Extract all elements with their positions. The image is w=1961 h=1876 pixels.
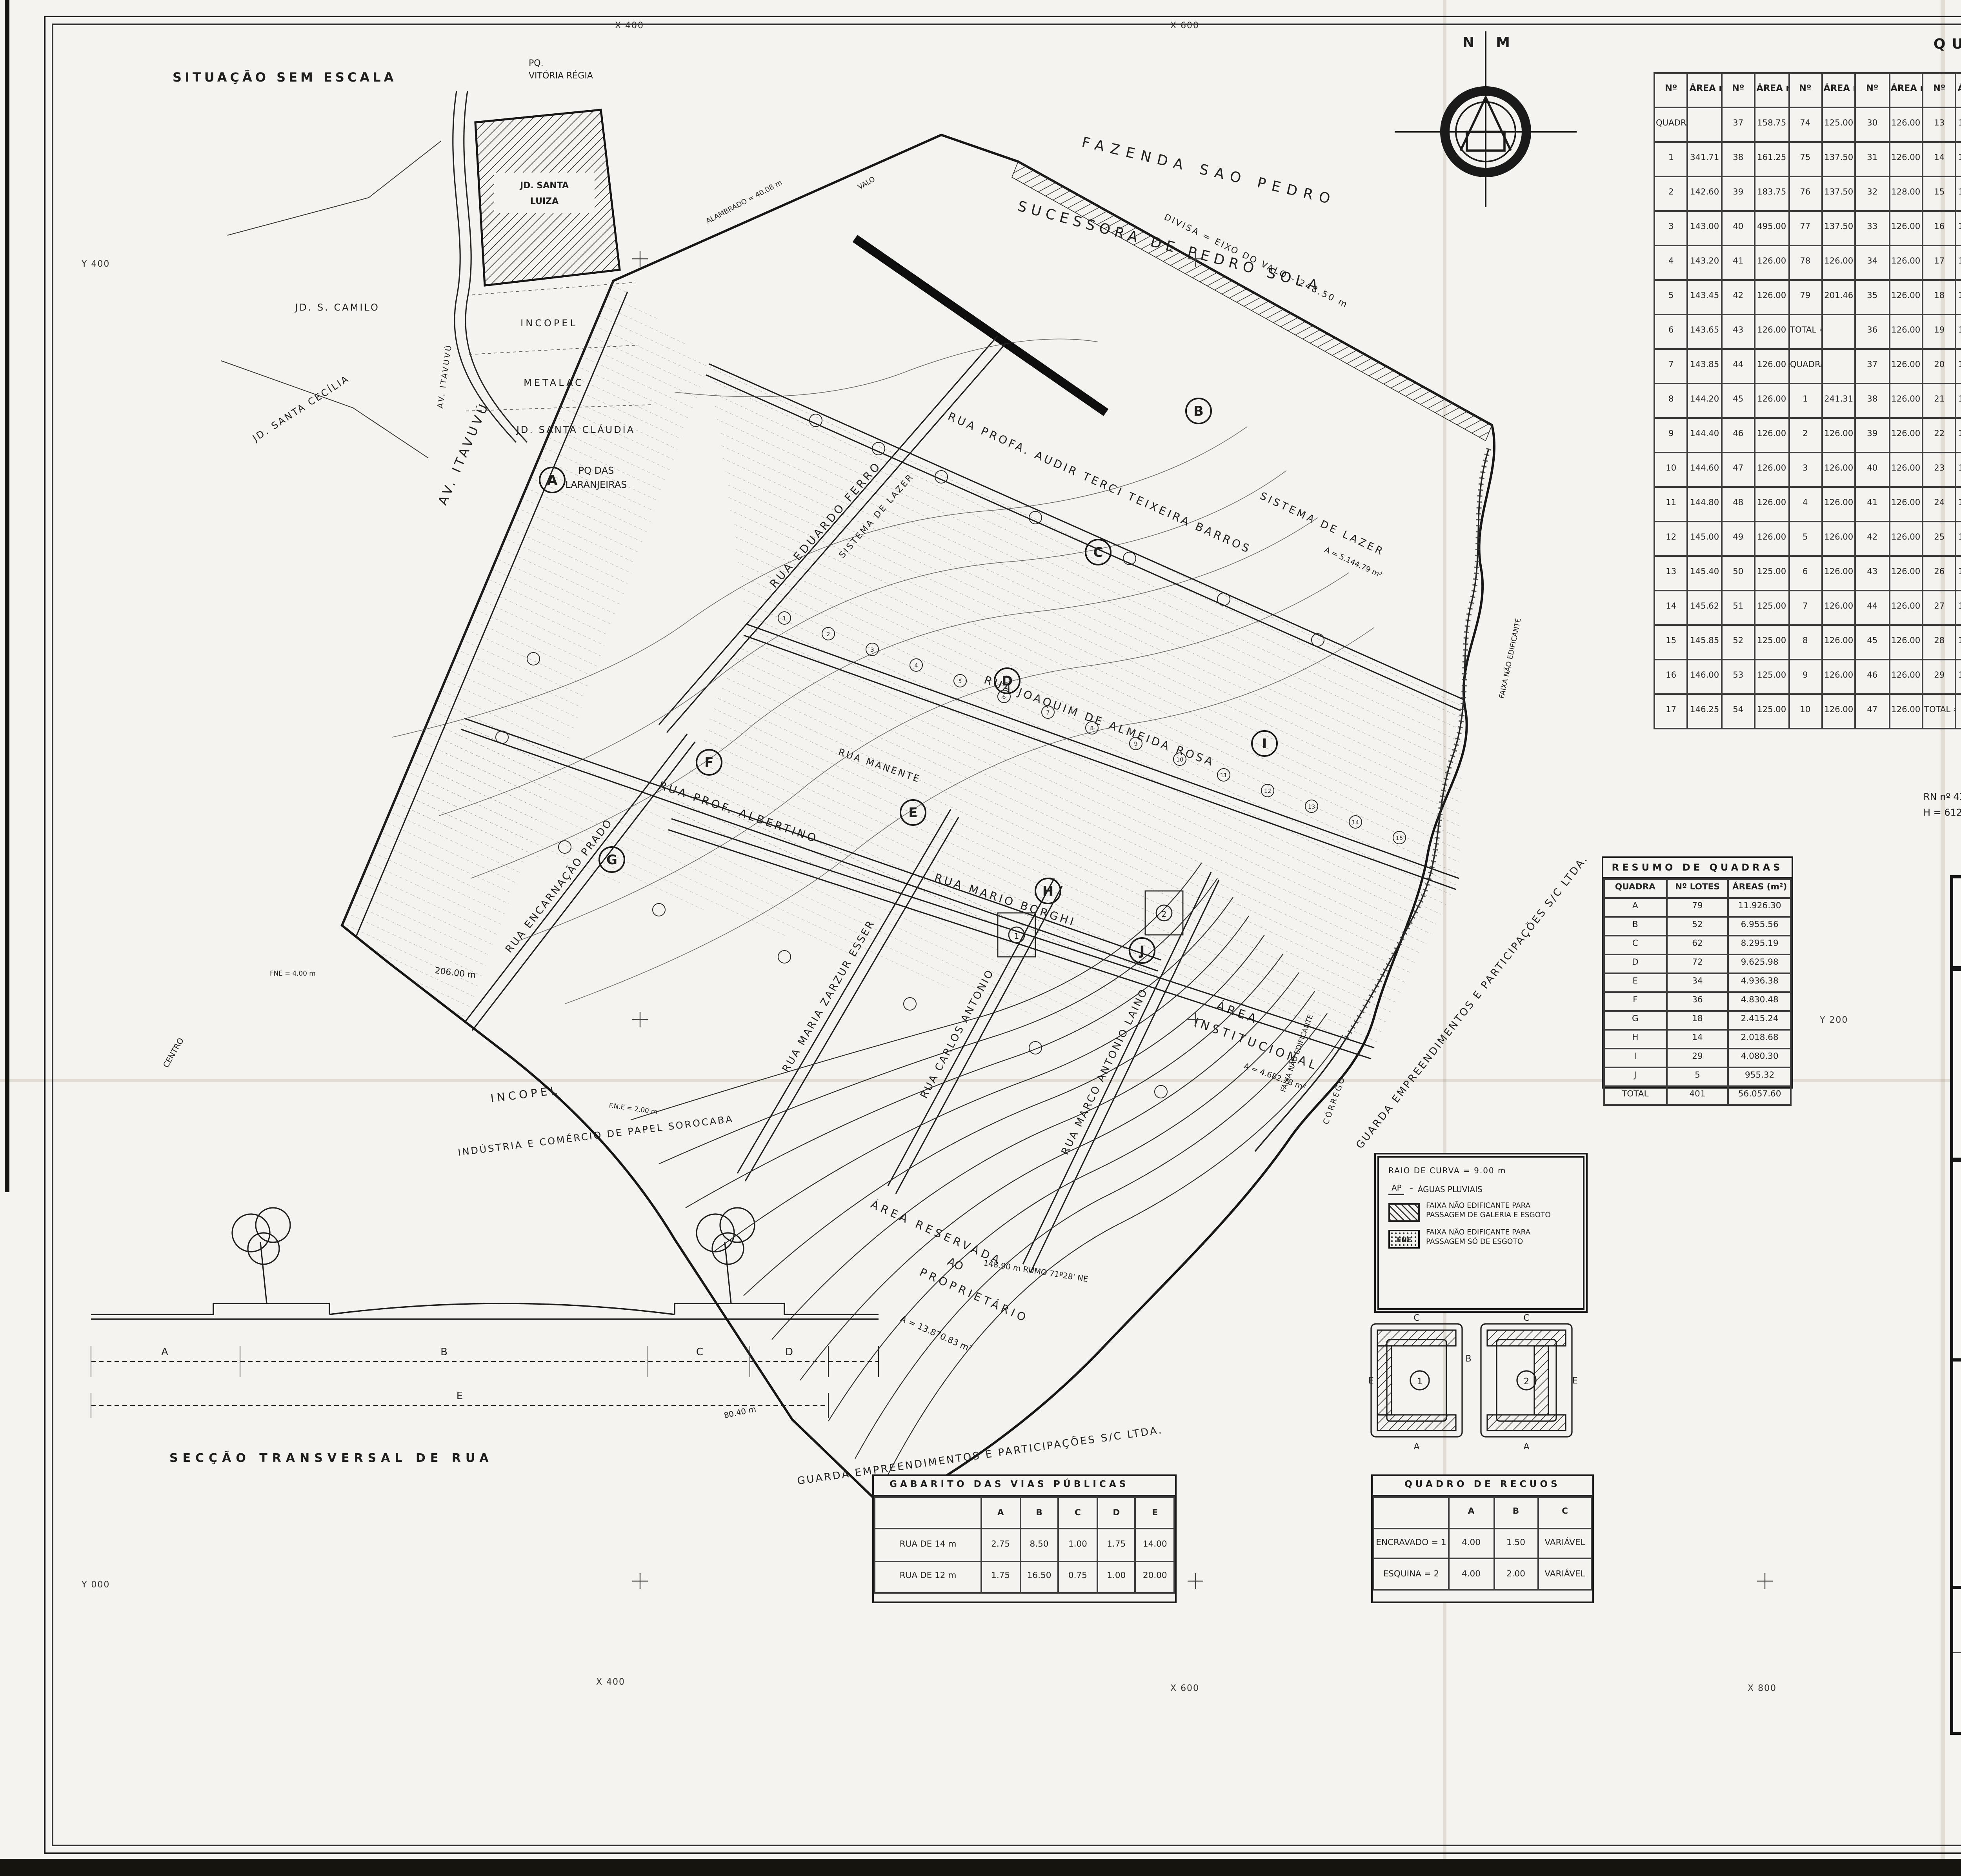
svg-text:13: 13 (1308, 804, 1315, 810)
table-cell: 143.85 (1688, 349, 1722, 384)
table-cell: 24 (1923, 487, 1956, 522)
table-cell: 45 (1855, 625, 1889, 660)
svg-text:FAZENDA SAO PEDRO: FAZENDA SAO PEDRO (1080, 134, 1338, 208)
table-cell: Nº (1855, 73, 1889, 107)
table-cell: 126.00 (1956, 625, 1961, 660)
table-cell: 143.00 (1688, 211, 1722, 245)
table-cell: 126.00 (1956, 660, 1961, 694)
svg-text:3: 3 (870, 647, 874, 653)
table-cell: 126.00 (1889, 142, 1923, 176)
table-cell: Nº (1654, 73, 1688, 107)
table-cell: 125.00 (1755, 660, 1789, 694)
table-cell: 1.00 (1097, 1561, 1135, 1593)
grid-label-x400-bot: X 400 (596, 1678, 625, 1688)
table-cell: 41 (1721, 245, 1755, 280)
table-cell: 6 (1788, 556, 1822, 591)
table-cell: 35 (1855, 280, 1889, 314)
table-cell: 126.00 (1822, 453, 1856, 487)
table-cell: 18 (1923, 280, 1956, 314)
gabarito-title: GABARITO DAS VIAS PÚBLICAS (874, 1476, 1175, 1496)
legend-raio: RAIO DE CURVA = 9.00 m (1388, 1167, 1577, 1176)
table-cell: 25 (1923, 522, 1956, 556)
legend-box: RAIO DE CURVA = 9.00 m AP – ÁGUAS PLUVIA… (1374, 1153, 1588, 1313)
svg-text:1: 1 (782, 616, 786, 622)
svg-text:JD. SANTA: JD. SANTA (519, 181, 569, 191)
svg-text:LUIZA: LUIZA (530, 196, 558, 206)
table-cell: 31 (1855, 142, 1889, 176)
table-cell: 495.00 (1755, 211, 1789, 245)
table-cell: 125.00 (1755, 694, 1789, 729)
table-cell: 42 (1855, 522, 1889, 556)
svg-text:15: 15 (1396, 835, 1403, 842)
legend-fne2-swatch: FNE (1388, 1230, 1420, 1249)
table-cell: A (981, 1497, 1020, 1529)
svg-text:C: C (1413, 1313, 1419, 1323)
svg-text:G: G (606, 852, 617, 868)
table-cell: 126.00 (1755, 280, 1789, 314)
svg-text:VALO: VALO (857, 175, 877, 191)
table-cell: 144.80 (1688, 487, 1722, 522)
legend-fne2-text: FAIXA NÃO EDIFICANTE PARA PASSAGEM SÓ DE… (1426, 1230, 1570, 1249)
table-cell: E (1604, 973, 1666, 992)
table-cell: VARIÁVEL (1538, 1559, 1592, 1590)
table-cell: 32 (1855, 176, 1889, 211)
table-cell: 20.00 (1136, 1561, 1175, 1593)
areas-title: ÁREAS (1953, 1369, 1961, 1381)
table-cell: 126.00 (1956, 176, 1961, 211)
table-cell: ENCRAVADO = 1 (1373, 1528, 1449, 1559)
table-cell: 75 (1788, 142, 1822, 176)
table-cell: B (1493, 1497, 1538, 1528)
table-cell: 8.295.19 (1728, 936, 1791, 954)
table-cell: E (1136, 1497, 1175, 1529)
street-section: A B C D E SECÇÃO TRANSVERSAL DE RUA (91, 1208, 879, 1465)
lot-strip-3 (342, 281, 709, 1023)
svg-text:E: E (908, 805, 917, 821)
table-cell: 183.75 (1755, 176, 1789, 211)
table-cell: 52 (1721, 625, 1755, 660)
svg-text:SISTEMA DE LAZER: SISTEMA DE LAZER (1258, 490, 1386, 558)
table-cell: 40 (1721, 211, 1755, 245)
table-cell: ESQUINA = 2 (1373, 1559, 1449, 1590)
table-cell: 46 (1721, 418, 1755, 453)
table-cell: 144.20 (1688, 384, 1722, 418)
grid-label-x600-top: X 600 (1170, 22, 1199, 31)
table-cell: 2.415.24 (1728, 1011, 1791, 1030)
table-cell: 18 (1666, 1011, 1729, 1030)
table-cell: 145.40 (1688, 556, 1722, 591)
table-cell: 76 (1788, 176, 1822, 211)
table-cell: 1 (1654, 142, 1688, 176)
table-cell: TOTAL = 8.295.19 (1923, 694, 1956, 729)
table-cell: 79 (1788, 280, 1822, 314)
table-cell: 126.00 (1822, 522, 1856, 556)
table-cell: 29 (1923, 660, 1956, 694)
table-cell: 16.50 (1020, 1561, 1058, 1593)
praca2-num: 2 (1162, 909, 1167, 919)
table-cell: 43 (1721, 314, 1755, 349)
resumo-title: RESUMO DE QUADRAS (1603, 858, 1792, 878)
svg-text:8: 8 (1090, 725, 1093, 732)
processo-line: PROCESSO Nº 2.590/87 (1953, 1686, 1961, 1700)
svg-text:AV. ITAVUVÚ: AV. ITAVUVÚ (435, 343, 454, 409)
table-cell: 53 (1721, 660, 1755, 694)
table-cell: 126.00 (1822, 556, 1856, 591)
table-cell: 54 (1721, 694, 1755, 729)
table-cell: 23 (1923, 453, 1956, 487)
table-cell: 1.00 (1059, 1529, 1097, 1561)
table-cell: 9.625.98 (1728, 954, 1791, 973)
table-cell: 137.50 (1822, 211, 1856, 245)
table-cell: 126.00 (1822, 591, 1856, 625)
table-cell: 126.00 (1822, 487, 1856, 522)
decreto-line: DECRETO DE APROVAÇÃO Nº 6.022 – 21-10-87 (1953, 1666, 1961, 1680)
table-cell: 6 (1654, 314, 1688, 349)
legend-ap-text: ÁGUAS PLUVIAIS (1418, 1185, 1483, 1194)
table-cell: 1.75 (1097, 1529, 1135, 1561)
grid-label-y200-mid: Y 200 (1820, 1016, 1848, 1026)
table-cell: 126.00 (1956, 487, 1961, 522)
table-cell: 126.00 (1822, 660, 1856, 694)
svg-text:SUCESSORA DE PEDRO SOLA: SUCESSORA DE PEDRO SOLA (1016, 198, 1324, 295)
table-cell: 955.32 (1728, 1067, 1791, 1086)
table-cell: 4.080.30 (1728, 1049, 1791, 1067)
drawing-sheet: 12 34 56 78 910 1112 1314 15 (0, 0, 1961, 1876)
table-cell: 45 (1721, 384, 1755, 418)
table-cell: 74 (1788, 107, 1822, 142)
table-cell: 137.50 (1822, 142, 1856, 176)
svg-text:14: 14 (1352, 820, 1359, 826)
table-cell: ÁREAS (m²) (1728, 879, 1791, 898)
svg-text:C: C (696, 1346, 703, 1358)
titleblock-title: PROJETO DE LOTEAMENTO POPULAR (1953, 897, 1961, 935)
table-cell: 146.00 (1688, 660, 1722, 694)
table-cell: 26 (1923, 556, 1956, 591)
table-cell: 144.40 (1688, 418, 1722, 453)
table-cell: ÁREA m² (1755, 73, 1789, 107)
table-cell: 6.955.56 (1728, 917, 1791, 936)
table-cell: 11.926.30 (1728, 898, 1791, 917)
table-cell: 49 (1721, 522, 1755, 556)
grid-label-y400-left: Y 400 (82, 260, 110, 270)
svg-text:H: H (1042, 883, 1053, 899)
table-cell: D (1097, 1497, 1135, 1529)
table-cell: 50 (1721, 556, 1755, 591)
table-cell: 126.00 (1755, 487, 1789, 522)
table-cell: 126.00 (1822, 625, 1856, 660)
table-cell: 201.46 (1822, 280, 1856, 314)
table-cell: 7 (1788, 591, 1822, 625)
table-cell: 126.00 (1889, 625, 1923, 660)
svg-text:JD. SANTA CLÁUDIA: JD. SANTA CLÁUDIA (516, 424, 635, 435)
svg-text:2: 2 (1524, 1377, 1529, 1387)
table-cell: 126.00 (1755, 418, 1789, 453)
table-cell: 126.00 (1956, 280, 1961, 314)
svg-text:6: 6 (1002, 694, 1006, 700)
table-cell: 14 (1666, 1030, 1729, 1049)
table-cell: 41 (1855, 487, 1889, 522)
table-cell: 125.00 (1755, 591, 1789, 625)
table-cell: 8 (1788, 625, 1822, 660)
table-cell: D (1604, 954, 1666, 973)
table-cell: 7 (1654, 349, 1688, 384)
svg-text:E: E (457, 1390, 463, 1402)
table-cell: 51 (1721, 591, 1755, 625)
svg-text:A: A (547, 473, 558, 488)
table-cell: 126.00 (1755, 349, 1789, 384)
table-cell: 126.00 (1755, 314, 1789, 349)
table-cell (1956, 694, 1961, 729)
svg-text:4: 4 (914, 663, 918, 669)
svg-text:A = 13.870.83 m²: A = 13.870.83 m² (899, 1314, 973, 1354)
table-cell: 44 (1855, 591, 1889, 625)
svg-text:PQ.: PQ. (529, 58, 544, 68)
table-cell: 38 (1855, 384, 1889, 418)
svg-text:F: F (704, 755, 713, 771)
svg-text:A: A (1413, 1442, 1419, 1452)
table-cell: 143.45 (1688, 280, 1722, 314)
svg-text:PQ DAS: PQ DAS (578, 465, 614, 476)
table-cell: 9 (1654, 418, 1688, 453)
table-cell: 8.50 (1020, 1529, 1058, 1561)
table-cell: 34 (1666, 973, 1729, 992)
svg-text:INCOPEL: INCOPEL (490, 1083, 560, 1105)
quadro-de-areas: QUADRO DE ÁREAS NºÁREA m²NºÁREA m²NºÁREA… (1654, 28, 1961, 728)
table-cell: F (1604, 992, 1666, 1011)
svg-text:AV. ITAVUVÚ: AV. ITAVUVÚ (435, 399, 492, 507)
table-cell: A (1604, 898, 1666, 917)
recuos-box: QUADRO DE RECUOS ABCENCRAVADO = 14.001.5… (1371, 1474, 1594, 1603)
table-cell: 125.00 (1755, 625, 1789, 660)
svg-text:9: 9 (1134, 741, 1137, 747)
svg-text:D: D (785, 1346, 793, 1358)
table-cell: 30 (1855, 107, 1889, 142)
table-cell: 15 (1654, 625, 1688, 660)
table-cell: 4.936.38 (1728, 973, 1791, 992)
table-cell: 128.00 (1889, 176, 1923, 211)
table-cell: 44 (1721, 349, 1755, 384)
table-cell: 4 (1654, 245, 1688, 280)
table-cell: 143.65 (1688, 314, 1722, 349)
table-cell: 143.20 (1688, 245, 1722, 280)
svg-text:C: C (1093, 545, 1103, 560)
praca-diagrams: CE A1 CE A2 B (1368, 1313, 1578, 1452)
table-cell: 126.00 (1956, 522, 1961, 556)
table-cell: 13 (1654, 556, 1688, 591)
table-cell: 5 (1788, 522, 1822, 556)
svg-text:12: 12 (1264, 788, 1271, 794)
table-cell: 16 (1654, 660, 1688, 694)
svg-text:JD. S. CAMILO: JD. S. CAMILO (294, 302, 380, 313)
gabarito-table: ABCDERUA DE 14 m2.758.501.001.7514.00RUA… (875, 1497, 1174, 1593)
table-cell: 2 (1654, 176, 1688, 211)
table-cell: 52 (1666, 917, 1729, 936)
svg-text:B: B (440, 1346, 448, 1358)
table-cell: 126.00 (1889, 660, 1923, 694)
table-cell: 19 (1923, 314, 1956, 349)
table-cell: 126.00 (1956, 556, 1961, 591)
table-cell: A (1449, 1497, 1493, 1528)
table-cell: 47 (1855, 694, 1889, 729)
resumo-de-quadras: RESUMO DE QUADRAS QUADRANº LOTESÁREAS (m… (1602, 856, 1793, 1089)
title-block: PROJETO DE LOTEAMENTO POPULAR PLANO URBA… (1950, 875, 1961, 1735)
table-cell: 241.31 (1822, 384, 1856, 418)
table-cell: 21 (1923, 384, 1956, 418)
legend-ap-symbol: AP (1388, 1184, 1405, 1195)
table-cell: 22 (1923, 418, 1956, 453)
table-cell: C (1059, 1497, 1097, 1529)
section-caption: SECÇÃO TRANSVERSAL DE RUA (169, 1451, 493, 1465)
table-cell: 4.00 (1449, 1528, 1493, 1559)
svg-text:INDÚSTRIA E COMÉRCIO DE PA: INDÚSTRIA E COMÉRCIO DE PAPEL SOROCABA (457, 1113, 734, 1158)
north-compass: N M (1395, 31, 1577, 207)
svg-text:CENTRO: CENTRO (161, 1036, 186, 1069)
table-cell: 1.50 (1493, 1528, 1538, 1559)
table-cell: TOTAL (1604, 1086, 1666, 1105)
table-cell: C (1604, 936, 1666, 954)
table-cell: 126.00 (1755, 384, 1789, 418)
table-cell: TOTAL = 11.926.30 (1788, 314, 1822, 349)
svg-text:A: A (161, 1346, 168, 1358)
table-cell: 126.00 (1956, 453, 1961, 487)
svg-text:SITUAÇÃO SEM ESCALA: SITUAÇÃO SEM ESCALA (173, 70, 397, 85)
table-cell: G (1604, 1011, 1666, 1030)
table-cell: 2.018.68 (1728, 1030, 1791, 1049)
table-cell: 126.00 (1822, 694, 1856, 729)
table-cell: QUADRA "B" (1788, 349, 1822, 384)
table-cell: 47 (1721, 453, 1755, 487)
table-cell: 126.00 (1956, 349, 1961, 384)
situacao-inset: SITUAÇÃO SEM ESCALA JD. SANTA LUIZA INCO… (173, 58, 651, 490)
table-cell: 126.00 (1889, 522, 1923, 556)
table-cell: 4.00 (1449, 1559, 1493, 1590)
table-cell: 126.00 (1956, 142, 1961, 176)
table-cell: 126.00 (1956, 591, 1961, 625)
table-cell (1688, 107, 1722, 142)
table-cell: 126.00 (1889, 280, 1923, 314)
rn-benchmark: RN nº 43 H = 612.513 m (1923, 791, 1961, 821)
table-cell: 158.75 (1755, 107, 1789, 142)
table-cell: 0.75 (1059, 1561, 1097, 1593)
table-cell: ÁREA m² (1956, 73, 1961, 107)
legend-fne1-swatch (1388, 1203, 1420, 1222)
table-cell: 37 (1721, 107, 1755, 142)
table-cell: 126.00 (1956, 314, 1961, 349)
table-cell: 142.60 (1688, 176, 1722, 211)
table-cell: 36 (1666, 992, 1729, 1011)
table-cell: 144.60 (1688, 453, 1722, 487)
svg-text:I: I (1262, 736, 1267, 752)
legend-fne1-text: FAIXA NÃO EDIFICANTE PARA PASSAGEM DE GA… (1426, 1203, 1570, 1222)
table-cell: C (1538, 1497, 1592, 1528)
table-cell: 145.85 (1688, 625, 1722, 660)
rn-line1: RN nº 43 (1923, 791, 1961, 805)
table-cell: ÁREA m² (1688, 73, 1722, 107)
grid-label-x400-top: X 400 (615, 22, 644, 31)
table-cell: 43 (1855, 556, 1889, 591)
table-cell: 28 (1923, 625, 1956, 660)
table-cell: 40 (1855, 453, 1889, 487)
svg-text:E: E (1572, 1376, 1578, 1386)
table-cell: 126.00 (1889, 314, 1923, 349)
svg-text:1: 1 (1417, 1377, 1423, 1387)
table-cell: 17 (1654, 694, 1688, 729)
table-cell: Nº (1923, 73, 1956, 107)
table-cell: VARIÁVEL (1538, 1528, 1592, 1559)
recuos-title: QUADRO DE RECUOS (1373, 1476, 1592, 1496)
table-cell: 13 (1923, 107, 1956, 142)
table-cell: 1 (1788, 384, 1822, 418)
table-cell: 46 (1855, 660, 1889, 694)
svg-text:11: 11 (1220, 773, 1227, 779)
table-cell: 126.00 (1889, 107, 1923, 142)
svg-text:B: B (1193, 404, 1204, 419)
table-cell: 126.00 (1889, 384, 1923, 418)
table-cell: RUA DE 14 m (875, 1529, 981, 1561)
table-cell: 125.00 (1755, 556, 1789, 591)
table-cell: 5 (1666, 1067, 1729, 1086)
table-cell: 14 (1654, 591, 1688, 625)
resumo-table: QUADRANº LOTESÁREAS (m²)A7911.926.30B526… (1604, 879, 1791, 1105)
svg-text:ÁREA RESERVADA: ÁREA RESERVADA (869, 1197, 1004, 1267)
table-cell: 126.00 (1755, 453, 1789, 487)
table-cell (875, 1497, 981, 1529)
table-cell: 72 (1666, 954, 1729, 973)
svg-text:INCOPEL: INCOPEL (520, 318, 578, 329)
table-cell: 126.00 (1822, 418, 1856, 453)
table-cell: 9 (1788, 660, 1822, 694)
table-cell: 79 (1666, 898, 1729, 917)
table-cell: 2.00 (1493, 1559, 1538, 1590)
table-cell: QUADRA (1604, 879, 1666, 898)
gabarito-box: GABARITO DAS VIAS PÚBLICAS ABCDERUA DE 1… (872, 1474, 1177, 1603)
table-cell: 4.830.48 (1728, 992, 1791, 1011)
svg-text:FAIXA NÃO EDIFICANTE: FAIXA NÃO EDIFICANTE (1497, 617, 1523, 699)
table-cell: 401 (1666, 1086, 1729, 1105)
compass-m: M (1496, 35, 1510, 51)
table-cell: 126.00 (1889, 591, 1923, 625)
situacao-sesc: SITUAÇÃO S/ ESC. (1953, 1183, 1961, 1198)
table-cell: 5 (1654, 280, 1688, 314)
table-cell: 145.00 (1688, 522, 1722, 556)
table-cell: 126.00 (1822, 245, 1856, 280)
table-cell: 125.00 (1822, 107, 1856, 142)
table-cell: 3 (1788, 453, 1822, 487)
table-cell: 126.00 (1956, 107, 1961, 142)
svg-text:AO: AO (946, 1255, 966, 1273)
table-cell: 16 (1923, 211, 1956, 245)
rn-line2: H = 612.513 m (1923, 805, 1961, 820)
vide-ao-lado: VIDE AO LADO (1953, 1270, 1961, 1282)
table-cell: ÁREA m² (1889, 73, 1923, 107)
table-cell: 126.00 (1956, 245, 1961, 280)
table-cell: 34 (1855, 245, 1889, 280)
table-cell: 14 (1923, 142, 1956, 176)
table-cell: 10 (1654, 453, 1688, 487)
table-cell: 126.00 (1755, 245, 1789, 280)
svg-text:ALAMBRADO = 40.08 m: ALAMBRADO = 40.08 m (705, 178, 784, 225)
table-cell: 39 (1721, 176, 1755, 211)
alambrado-bar (855, 238, 1106, 413)
svg-text:7: 7 (1046, 710, 1050, 716)
svg-text:80.40 m: 80.40 m (723, 1404, 757, 1420)
table-cell: 77 (1788, 211, 1822, 245)
svg-text:VITÓRIA RÉGIA: VITÓRIA RÉGIA (529, 71, 593, 81)
table-cell: 145.62 (1688, 591, 1722, 625)
table-cell: 62 (1666, 936, 1729, 954)
table-cell: 126.00 (1889, 487, 1923, 522)
table-cell: 38 (1721, 142, 1755, 176)
